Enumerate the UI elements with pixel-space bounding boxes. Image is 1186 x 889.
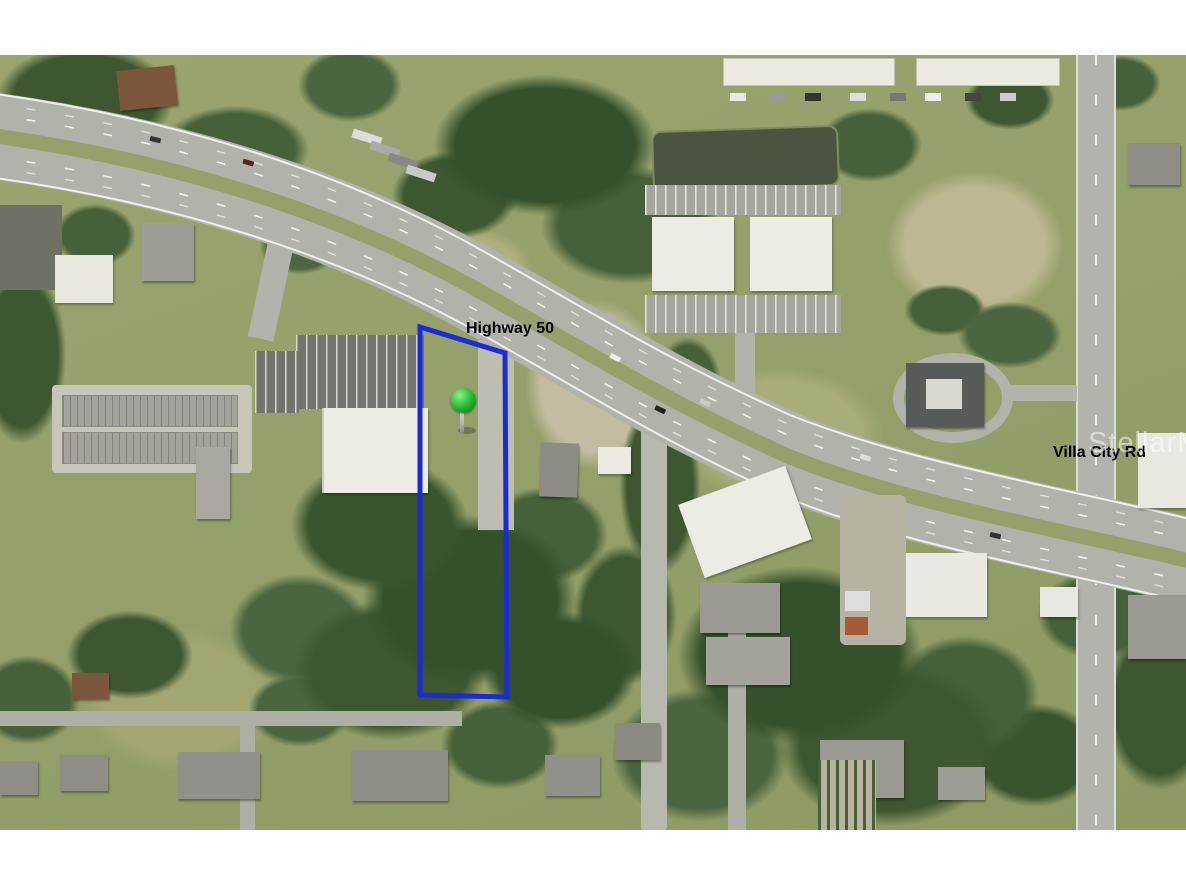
parcel-boundary-polygon [420,327,507,697]
aerial-map-image: Highway 50 Villa City Rd StellarMLS [0,55,1186,830]
mls-watermark: StellarMLS [1088,427,1186,460]
listing-photo-frame: Highway 50 Villa City Rd StellarMLS [0,0,1186,889]
parcel-boundary-overlay [0,55,1186,830]
letterbox-top [0,0,1186,55]
letterbox-bottom [0,830,1186,889]
map-pin [451,388,476,413]
highway-label: Highway 50 [466,320,554,338]
